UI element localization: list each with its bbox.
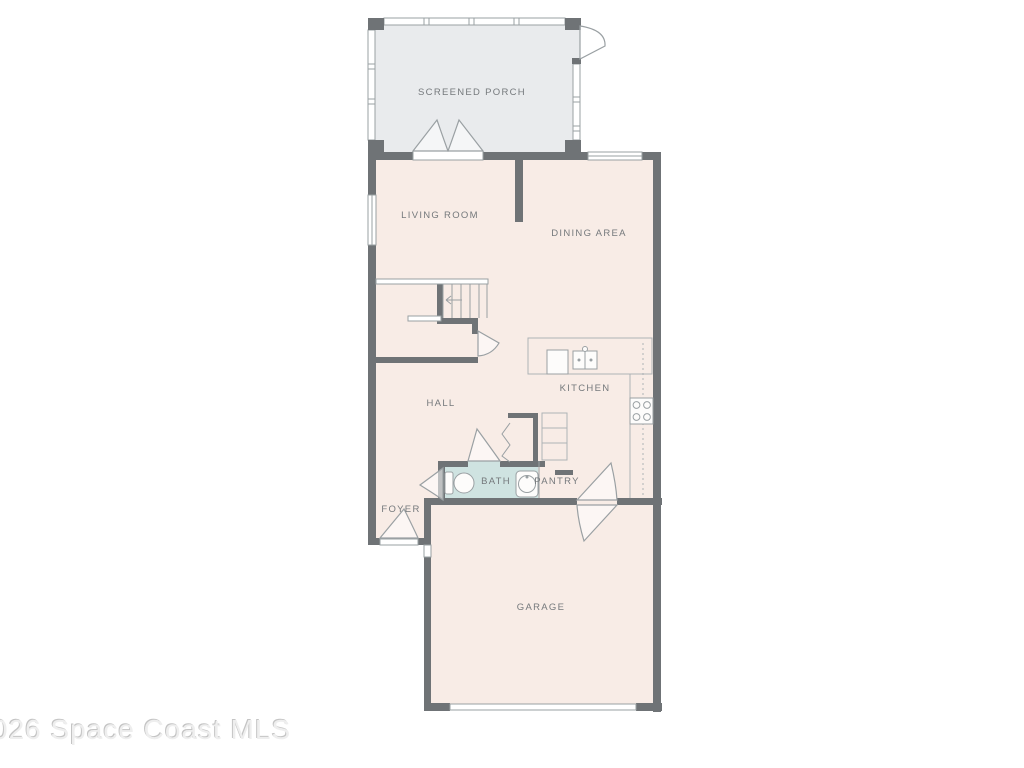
garage-bottom-corner-left <box>424 703 450 711</box>
porch-post-bottom-right <box>565 140 581 153</box>
toilet-icon <box>445 472 474 494</box>
dining-window <box>588 152 642 160</box>
label-garage: GARAGE <box>517 602 565 613</box>
closet-right-wall <box>533 413 538 463</box>
floor-plan-drawing: SCREENED PORCH LIVING ROOM DINING AREA K… <box>0 0 1024 768</box>
label-hall: HALL <box>427 398 456 409</box>
bath-top-wall-right <box>500 461 545 467</box>
label-pantry: PANTRY <box>534 476 579 487</box>
stair-wall-vertical-2 <box>472 318 478 334</box>
porch-screen-wall-left <box>368 30 375 140</box>
top-wall-seg-2 <box>483 152 588 160</box>
dishwasher-icon <box>547 350 568 374</box>
stair-wall-horizontal <box>437 318 478 324</box>
left-wall-upper <box>368 152 376 195</box>
garage-side-window <box>424 545 431 557</box>
label-foyer: FOYER <box>381 504 420 515</box>
right-wall <box>653 152 661 712</box>
mls-watermark: 026 Space Coast MLS <box>0 714 291 746</box>
stair-wall-vertical <box>437 283 443 320</box>
porch-door-threshold <box>413 151 483 160</box>
foyer-wall-seg-2 <box>418 538 431 545</box>
living-dining-stub-wall <box>515 160 523 222</box>
front-door-threshold <box>380 539 418 545</box>
foyer-wall-seg-1 <box>368 538 380 545</box>
label-dining-area: DINING AREA <box>551 228 627 239</box>
stair-railing <box>376 279 488 284</box>
floor-plan-page: SCREENED PORCH LIVING ROOM DINING AREA K… <box>0 0 1024 768</box>
porch-post-bottom-left <box>368 140 384 153</box>
porch-post-top-left <box>368 18 384 30</box>
hall-top-wall <box>368 357 478 363</box>
left-wall-lower <box>368 245 376 545</box>
label-screened-porch: SCREENED PORCH <box>418 87 526 98</box>
label-bath: BATH <box>481 476 511 487</box>
under-stair-shelf <box>408 316 441 321</box>
floor-fills <box>372 22 657 706</box>
living-room-window <box>368 195 376 245</box>
porch-post-top-right <box>565 18 581 30</box>
label-kitchen: KITCHEN <box>560 383 611 394</box>
garage-top-wall-right <box>617 498 662 505</box>
stove-icon <box>630 398 653 424</box>
garage-top-wall-left <box>424 498 577 505</box>
pantry-wall-stub <box>555 470 573 475</box>
main-floor <box>372 156 657 504</box>
garage-bottom-corner-right <box>636 703 662 711</box>
garage-left-wall-lower <box>424 557 431 706</box>
garage-door <box>450 704 636 710</box>
label-living-room: LIVING ROOM <box>401 210 479 221</box>
porch-screen-door-swing <box>580 26 605 59</box>
